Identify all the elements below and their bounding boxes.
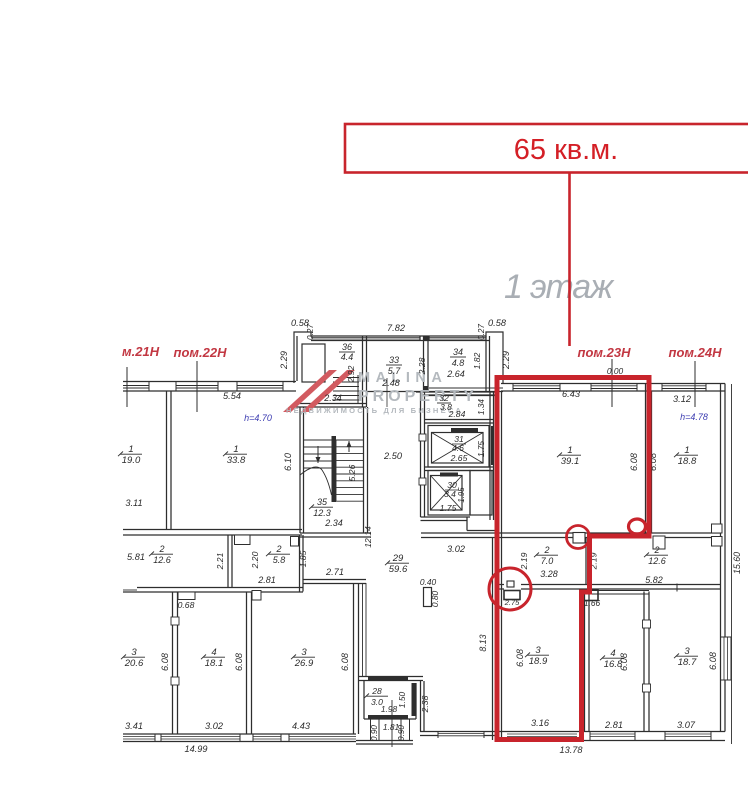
svg-text:36: 36	[342, 342, 352, 352]
svg-text:28: 28	[371, 686, 382, 696]
svg-text:4: 4	[211, 647, 216, 658]
svg-text:2.20: 2.20	[250, 551, 260, 569]
svg-text:3: 3	[684, 646, 690, 657]
svg-text:4.8: 4.8	[452, 358, 465, 368]
svg-text:пом.23Н: пом.23Н	[578, 345, 632, 360]
svg-text:пом.22Н: пом.22Н	[174, 345, 228, 360]
svg-text:1.82: 1.82	[472, 352, 482, 369]
svg-text:12.6: 12.6	[153, 555, 171, 565]
svg-text:2.81: 2.81	[257, 575, 276, 585]
svg-text:6.08: 6.08	[619, 652, 629, 671]
svg-text:2: 2	[158, 544, 164, 554]
svg-text:3.02: 3.02	[447, 544, 465, 554]
svg-text:2.92: 2.92	[346, 365, 356, 383]
svg-text:18.9: 18.9	[529, 656, 548, 667]
svg-text:3.07: 3.07	[677, 720, 696, 730]
svg-text:33.8: 33.8	[227, 455, 246, 466]
svg-text:2.28: 2.28	[417, 357, 427, 375]
svg-text:4.6: 4.6	[452, 443, 464, 453]
svg-text:5.26: 5.26	[347, 464, 357, 481]
svg-text:3.4: 3.4	[444, 489, 456, 499]
svg-text:5.8: 5.8	[273, 555, 286, 565]
svg-text:18.8: 18.8	[678, 456, 697, 467]
svg-text:1: 1	[684, 445, 689, 456]
svg-text:4: 4	[610, 648, 615, 659]
svg-text:2.34: 2.34	[323, 393, 342, 403]
svg-text:пом.24Н: пом.24Н	[669, 345, 723, 360]
svg-text:1: 1	[233, 444, 238, 455]
svg-text:h=4.78: h=4.78	[680, 412, 708, 422]
svg-text:34: 34	[453, 347, 463, 357]
svg-text:5.54: 5.54	[223, 391, 241, 401]
svg-text:НЕДВИЖИМОСТЬ ДЛЯ БИЗНЕСА: НЕДВИЖИМОСТЬ ДЛЯ БИЗНЕСА	[286, 406, 463, 415]
svg-text:h=4.70: h=4.70	[244, 413, 272, 423]
svg-text:2.34: 2.34	[324, 518, 343, 528]
svg-text:1.75: 1.75	[477, 441, 486, 457]
svg-text:3.11: 3.11	[125, 498, 142, 508]
svg-text:0.80: 0.80	[430, 591, 440, 608]
svg-text:3.28: 3.28	[540, 569, 558, 579]
svg-text:2.21: 2.21	[215, 552, 225, 570]
svg-text:1.95: 1.95	[457, 487, 466, 503]
svg-text:2.29: 2.29	[501, 351, 511, 370]
svg-text:39.1: 39.1	[561, 456, 580, 467]
svg-text:2.64: 2.64	[446, 369, 465, 379]
svg-text:0.68: 0.68	[178, 600, 195, 610]
svg-text:1.85: 1.85	[298, 550, 308, 567]
svg-text:59.6: 59.6	[389, 564, 408, 575]
svg-text:3: 3	[131, 647, 137, 658]
svg-text:3.02: 3.02	[205, 721, 223, 731]
svg-text:2.19: 2.19	[519, 552, 529, 570]
svg-text:м.21Н: м.21Н	[122, 344, 160, 359]
svg-text:MALINA: MALINA	[358, 370, 447, 386]
svg-text:2.65: 2.65	[450, 453, 468, 463]
svg-text:1.81: 1.81	[383, 722, 399, 732]
svg-text:12.6: 12.6	[648, 556, 666, 566]
svg-text:8.13: 8.13	[478, 634, 488, 651]
svg-text:13.78: 13.78	[560, 745, 584, 755]
svg-text:1 этаж: 1 этаж	[504, 268, 615, 306]
svg-text:4.43: 4.43	[292, 721, 311, 731]
svg-text:2.71: 2.71	[325, 567, 344, 577]
svg-text:20.6: 20.6	[124, 658, 144, 669]
svg-text:18.1: 18.1	[205, 658, 224, 669]
svg-text:0.58: 0.58	[488, 318, 507, 328]
svg-text:6.08: 6.08	[515, 648, 525, 667]
svg-text:14.99: 14.99	[185, 744, 208, 754]
svg-text:6.08: 6.08	[708, 651, 718, 670]
svg-text:PROPERTY: PROPERTY	[358, 388, 478, 405]
svg-text:6.08: 6.08	[340, 652, 350, 671]
svg-text:0.00: 0.00	[607, 366, 624, 376]
svg-text:1.50: 1.50	[397, 692, 407, 709]
svg-text:12.14: 12.14	[363, 526, 373, 548]
svg-text:2.29: 2.29	[279, 351, 289, 370]
svg-text:3.41: 3.41	[125, 721, 143, 731]
svg-text:15.60: 15.60	[732, 552, 742, 574]
svg-text:1.75: 1.75	[440, 503, 457, 513]
svg-text:1.66: 1.66	[584, 598, 601, 608]
svg-text:5.81: 5.81	[127, 552, 145, 562]
svg-text:1: 1	[128, 444, 133, 455]
svg-text:1.34: 1.34	[477, 399, 486, 415]
svg-text:2.75: 2.75	[504, 598, 521, 607]
svg-text:6.08: 6.08	[160, 652, 170, 671]
svg-text:2: 2	[543, 545, 549, 555]
svg-text:7.82: 7.82	[387, 323, 405, 333]
svg-text:2.50: 2.50	[383, 451, 403, 461]
svg-text:2.84: 2.84	[448, 409, 466, 419]
svg-text:6.43: 6.43	[562, 389, 581, 399]
svg-text:4.4: 4.4	[341, 352, 354, 362]
svg-text:6.08: 6.08	[234, 652, 244, 671]
svg-text:2.48: 2.48	[381, 378, 400, 388]
svg-text:0.27: 0.27	[477, 324, 486, 340]
svg-text:0.40: 0.40	[420, 577, 437, 587]
svg-text:35: 35	[317, 497, 328, 507]
svg-text:26.9: 26.9	[294, 658, 314, 669]
svg-text:19.0: 19.0	[122, 455, 141, 466]
svg-text:33: 33	[389, 355, 399, 365]
svg-text:5.7: 5.7	[388, 366, 402, 376]
svg-text:3.16: 3.16	[531, 718, 550, 728]
svg-text:2: 2	[653, 545, 659, 555]
svg-text:6.10: 6.10	[283, 452, 293, 471]
svg-text:2.81: 2.81	[604, 720, 623, 730]
svg-text:6.08: 6.08	[629, 452, 639, 471]
svg-text:3: 3	[301, 647, 307, 658]
svg-text:18.7: 18.7	[678, 657, 697, 668]
svg-text:65 кв.м.: 65 кв.м.	[514, 134, 618, 166]
svg-text:3.12: 3.12	[673, 394, 691, 404]
svg-text:2.38: 2.38	[420, 695, 430, 713]
svg-text:1: 1	[567, 445, 572, 456]
svg-text:29: 29	[392, 553, 404, 564]
svg-text:12.3: 12.3	[313, 508, 331, 518]
svg-text:0.27: 0.27	[306, 324, 315, 340]
svg-text:1.98: 1.98	[381, 704, 398, 714]
svg-text:5.82: 5.82	[645, 575, 663, 585]
svg-text:0.90: 0.90	[370, 725, 379, 741]
svg-text:3: 3	[535, 645, 541, 656]
svg-text:2: 2	[275, 544, 281, 554]
svg-text:7.0: 7.0	[541, 556, 554, 566]
